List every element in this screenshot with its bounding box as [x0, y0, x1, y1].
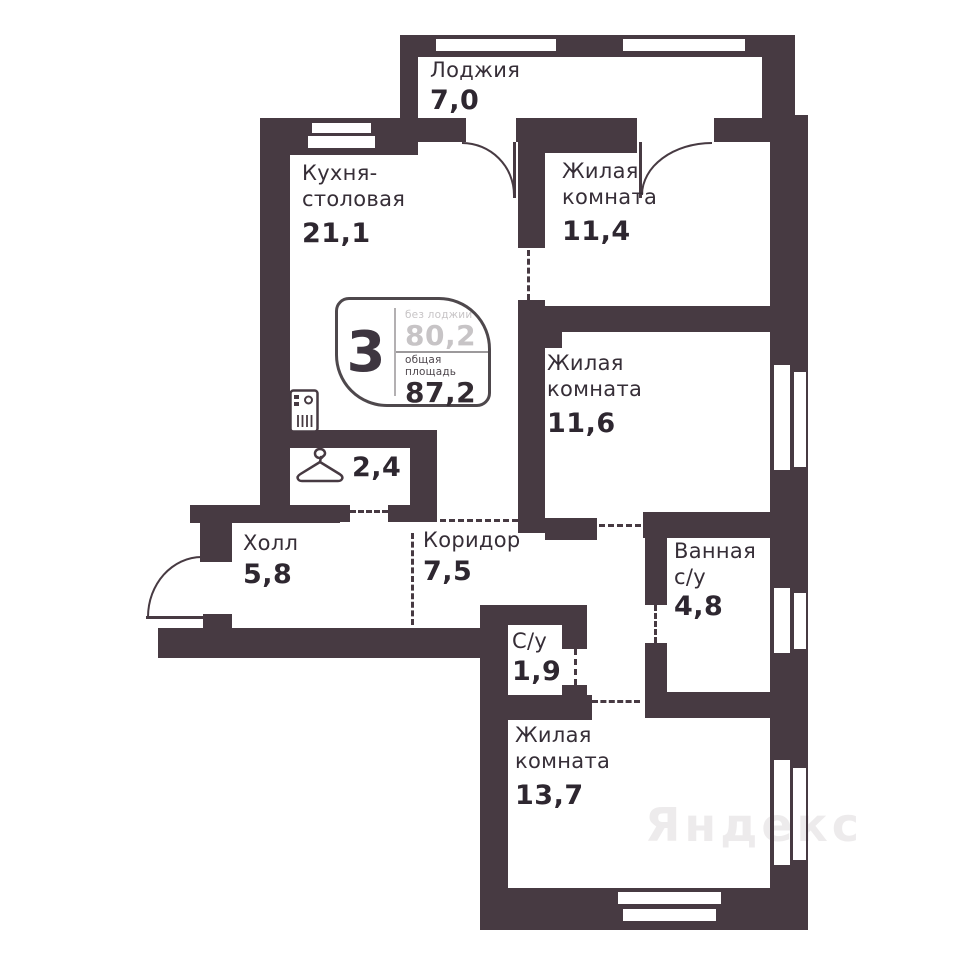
label-bedroom-top: Жилая комната 11,4	[562, 158, 657, 249]
wall-bath-left-top	[645, 535, 667, 605]
wall-bedroommid-step	[540, 332, 562, 348]
zone-hall-corridor	[411, 533, 414, 625]
wall-bath-left-bottom	[645, 643, 667, 695]
room-name: Холл	[243, 531, 298, 555]
sink-icon	[289, 389, 319, 433]
room-name: Жилая	[562, 158, 657, 184]
wall-entry-step	[203, 614, 232, 628]
opening-wardrobe-door	[350, 510, 388, 513]
room-area: 11,4	[562, 215, 657, 248]
wall-bedroommid-bottom	[545, 518, 597, 540]
wall-loggia-bottom-a	[418, 118, 466, 142]
wall-loggia-left	[400, 35, 418, 120]
wall-bedroomtop-top-b	[714, 118, 770, 142]
wall-hall-bottom	[158, 628, 480, 658]
wall-bedroombottom-top	[480, 695, 592, 720]
floor-plan: Лоджия 7,0 Кухня- столовая 21,1 Жилая ко…	[0, 0, 960, 960]
room-name: с/у	[674, 564, 756, 590]
wall-wc-right-top	[562, 625, 587, 649]
opening-bedroommid-door	[599, 524, 641, 527]
wall-right-top	[762, 35, 795, 118]
entrance-door-leaf	[146, 616, 203, 619]
window-bottom-a	[618, 892, 721, 904]
badge-rooms-count: 3	[338, 300, 394, 404]
label-bathroom: Ванная с/у 4,8	[674, 538, 756, 624]
wall-bedroomtop-top-a	[545, 118, 637, 153]
window-loggia-left	[436, 39, 556, 51]
room-area: 5,8	[243, 558, 298, 591]
wall-entry-pillar	[200, 505, 232, 562]
kitchen-balcony-door-arc	[462, 142, 515, 195]
watermark: Яндекс	[645, 798, 863, 852]
entrance-door-arc	[147, 556, 202, 617]
window-kitchen-b	[308, 136, 375, 148]
badge-bottom-label: общая площадь	[405, 354, 484, 378]
badge-bottom-value: 87,2	[405, 378, 484, 407]
room-area: 13,7	[515, 779, 610, 812]
area-badge: 3 без лоджии 80,2 общая площадь 87,2	[335, 297, 491, 407]
opening-bath-door	[654, 605, 657, 643]
window-bottom-b	[623, 909, 716, 921]
room-name: комната	[562, 184, 657, 210]
room-name: Жилая	[547, 350, 642, 376]
room-area: 1,9	[512, 655, 561, 688]
opening-wc-door	[574, 649, 577, 685]
room-area: 7,0	[430, 84, 520, 117]
wall-bedrooms-divider	[540, 306, 770, 332]
window-loggia-right	[623, 39, 745, 51]
badge-top-value: 80,2	[405, 321, 484, 350]
window-bedroommid-a	[774, 365, 790, 470]
room-name: столовая	[302, 186, 405, 212]
room-area: 7,5	[423, 555, 521, 588]
room-name: Жилая	[515, 722, 610, 748]
room-area: 21,1	[302, 217, 405, 250]
label-hall: Холл 5,8	[243, 530, 298, 592]
wall-wc-top	[480, 605, 587, 625]
badge-values: без лоджии 80,2 общая площадь 87,2	[394, 308, 488, 396]
room-area: 4,8	[674, 590, 756, 623]
zone-kitchen-corridor	[440, 519, 518, 522]
label-wardrobe-area: 2,4	[352, 452, 401, 483]
window-kitchen-a	[312, 123, 371, 133]
label-corridor: Коридор 7,5	[423, 527, 521, 589]
window-bath-a	[774, 588, 790, 653]
opening-kitchen-bedroomtop	[527, 250, 530, 300]
wall-bath-bottom	[645, 692, 808, 718]
label-bedroom-bottom: Жилая комната 13,7	[515, 722, 610, 813]
wall-column-top	[518, 118, 545, 248]
room-name: Коридор	[423, 528, 521, 552]
wall-kitchen-left	[260, 118, 290, 508]
wall-wardrobe-bottom-b	[388, 505, 437, 522]
room-name: Кухня-	[302, 160, 405, 186]
room-name: С/у	[512, 629, 547, 653]
window-bedroommid-b	[794, 372, 806, 467]
kitchen-balcony-door-leaf	[513, 142, 516, 198]
label-loggia: Лоджия 7,0	[430, 57, 520, 118]
label-bedroom-mid: Жилая комната 11,6	[547, 350, 642, 441]
opening-bedroombottom-door	[592, 700, 640, 703]
room-area: 11,6	[547, 407, 642, 440]
room-name: Ванная	[674, 538, 756, 564]
label-wc: С/у 1,9	[512, 628, 561, 689]
label-kitchen: Кухня- столовая 21,1	[302, 160, 405, 251]
window-bath-b	[794, 593, 806, 649]
hanger-icon	[294, 446, 346, 486]
room-name: Лоджия	[430, 58, 520, 82]
room-name: комната	[515, 748, 610, 774]
room-name: комната	[547, 376, 642, 402]
